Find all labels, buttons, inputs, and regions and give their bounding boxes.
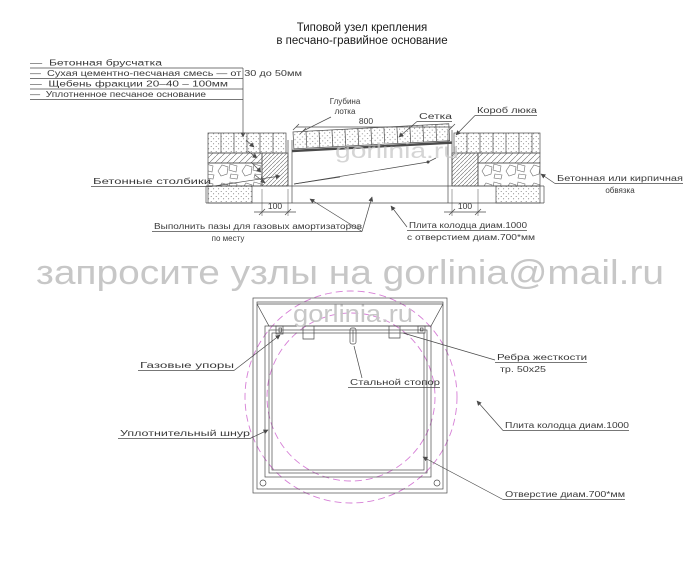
label-plan-slab: Плита колодца диам.1000 xyxy=(505,421,630,430)
plan-labels: Газовые упоры Уплотнительный шнур Стальн… xyxy=(118,333,630,500)
label-edging-2: обвязка xyxy=(605,186,635,195)
label-edging-1: Бетонная или кирпичная xyxy=(557,174,683,183)
legend-item-pavers: — Бетонная брусчатка xyxy=(30,59,163,68)
dim-100-right-value: 100 xyxy=(458,201,472,211)
label-hatch-box: Короб люка xyxy=(477,106,538,115)
label-well-slab-1: Плита колодца диам.1000 xyxy=(409,221,528,230)
label-grooves-note-2: по месту xyxy=(212,234,245,243)
label-concrete-posts: Бетонные столбики xyxy=(93,177,211,186)
title-line1: Типовой узел крепления xyxy=(297,22,428,34)
dim-100-left-value: 100 xyxy=(268,201,282,211)
cross-section: 800 100 100 Глубина лотка Сетка xyxy=(91,97,683,243)
label-tray-depth-1: Глубина xyxy=(330,97,361,106)
corner-pin-left xyxy=(260,480,266,486)
label-gas-struts: Газовые упоры xyxy=(140,361,234,370)
corner-pin-right xyxy=(434,480,440,486)
section-labels: Глубина лотка Сетка Короб люка Бетонные … xyxy=(91,97,683,243)
label-mesh: Сетка xyxy=(419,112,453,121)
legend-item-sand-base: — Уплотненное песчаное основание xyxy=(30,90,207,99)
title-line2: в песчано-гравийное основание xyxy=(276,35,447,47)
label-well-slab-2: с отверстием диам.700*мм xyxy=(407,233,535,242)
label-steel-stopper: Стальной стопор xyxy=(350,378,441,387)
drawing-sheet: Типовой узел крепления в песчано-гравийн… xyxy=(0,0,700,561)
label-ribs-2: тр. 50х25 xyxy=(500,365,547,374)
watermark-request-email: запросите узлы на gorlinia@mail.ru xyxy=(36,254,664,292)
technical-drawing: Типовой узел крепления в песчано-гравийн… xyxy=(0,0,700,561)
legend-item-gravel: — Щебень фракции 20–40 – 100мм xyxy=(30,80,228,89)
label-seal-cord: Уплотнительный шнур xyxy=(120,429,251,438)
label-plan-hole: Отверстие диам.700*мм xyxy=(505,490,625,499)
plan-view: gorlinia.ru Газовые упоры Уплотнительный… xyxy=(118,291,630,503)
hinge-block-right xyxy=(418,326,425,333)
watermark-brand-section: gorlinia.ru xyxy=(335,140,459,163)
label-tray-depth-2: лотка xyxy=(335,107,356,116)
label-ribs-1: Ребра жесткости xyxy=(497,353,587,362)
title-block: Типовой узел крепления в песчано-гравийн… xyxy=(276,22,447,47)
legend-item-cement-sand: — Сухая цементно-песчаная смесь — от 30 … xyxy=(30,69,302,78)
dim-100-left: 100 xyxy=(254,189,296,216)
dim-800-value: 800 xyxy=(359,116,373,126)
dim-100-right: 100 xyxy=(444,189,486,216)
watermark-brand-plan: gorlinia.ru xyxy=(293,301,413,328)
dashed-circle-hole-700 xyxy=(267,313,435,481)
label-grooves-note-1: Выполнить пазы для газовых амортизаторов xyxy=(154,222,362,231)
